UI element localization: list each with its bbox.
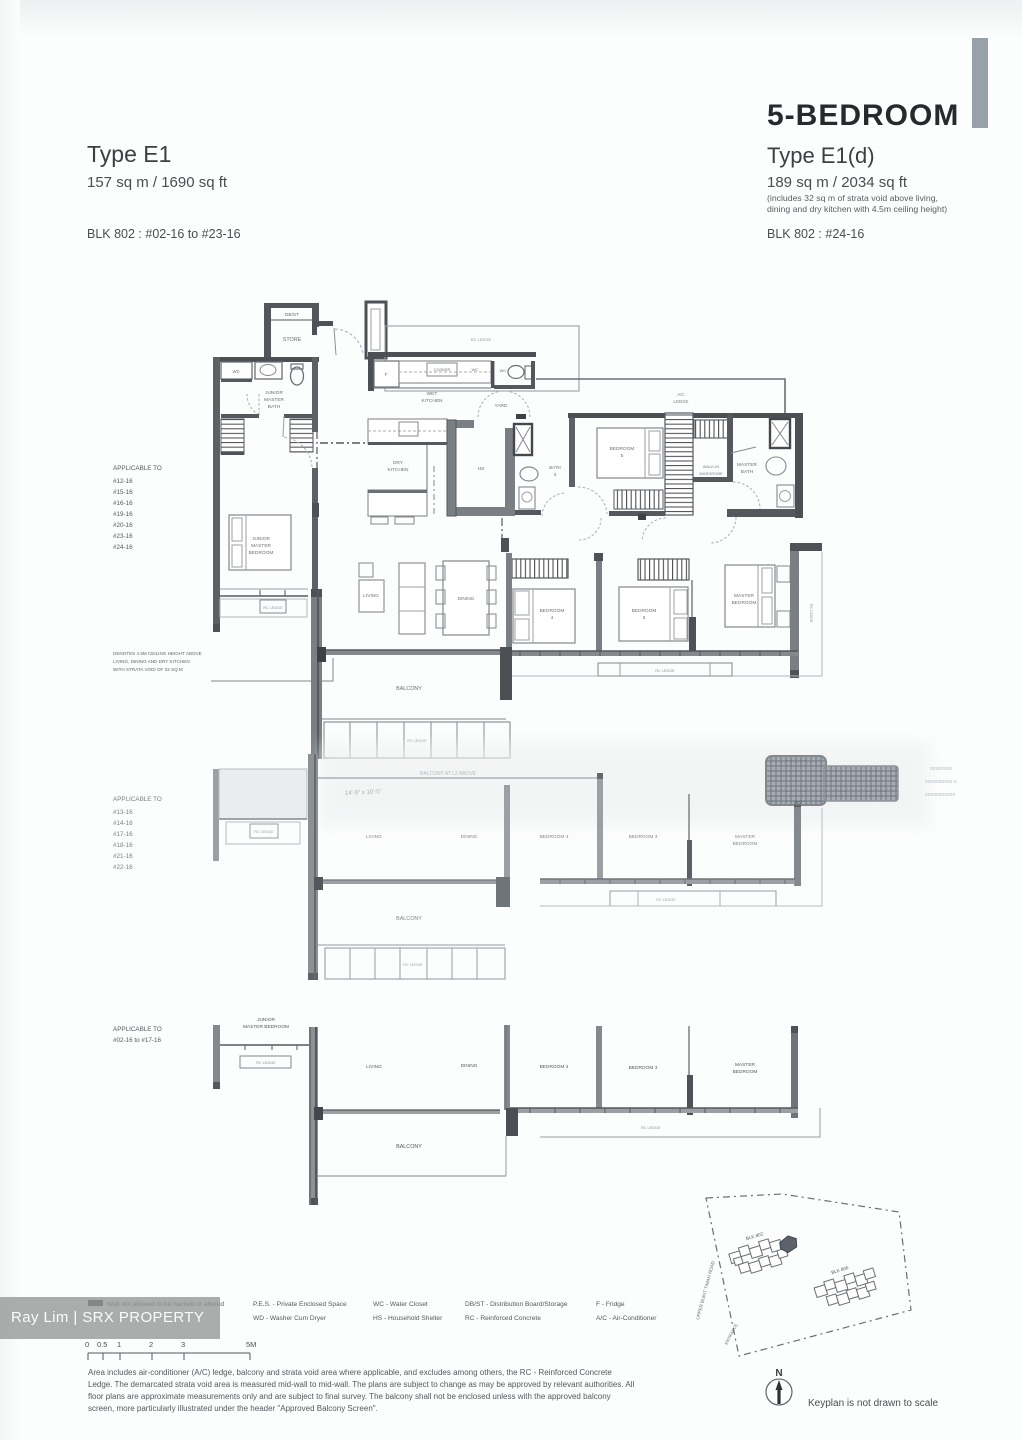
- svg-text:RC LEDGE: RC LEDGE: [656, 898, 676, 902]
- svg-text:3: 3: [554, 472, 557, 477]
- svg-text:157 sq m / 1690 sq ft: 157 sq m / 1690 sq ft: [87, 174, 228, 191]
- svg-text:RC LEDGE: RC LEDGE: [403, 963, 423, 967]
- svg-text:WET: WET: [427, 391, 438, 397]
- svg-text:#21-16: #21-16: [113, 853, 133, 860]
- svg-text:COOKER: COOKER: [434, 368, 451, 372]
- svg-text:DENOTES 4.5M CEILING HEIGHT AB: DENOTES 4.5M CEILING HEIGHT ABOVE: [113, 651, 202, 656]
- svg-text:BEDROOM: BEDROOM: [733, 1069, 758, 1075]
- svg-text:BEDROOM: BEDROOM: [540, 608, 565, 614]
- svg-text:RC LEDGE: RC LEDGE: [641, 1126, 661, 1130]
- svg-text:UPPER BUKIT TIMAH ROAD: UPPER BUKIT TIMAH ROAD: [695, 1260, 716, 1320]
- svg-text:RC LEDGE: RC LEDGE: [655, 669, 675, 673]
- svg-text:dining and dry kitchen with 4.: dining and dry kitchen with 4.5m ceiling…: [767, 204, 947, 214]
- svg-text:BEDROOM 3: BEDROOM 3: [629, 1065, 658, 1071]
- svg-text:WD - Washer Cum Dryer: WD - Washer Cum Dryer: [253, 1315, 327, 1322]
- svg-text:LIVING: LIVING: [363, 593, 379, 599]
- svg-text:#24-16: #24-16: [113, 544, 133, 551]
- svg-text:N: N: [775, 1368, 782, 1379]
- svg-text:WITH STRATA VOID OF 32 SQ M: WITH STRATA VOID OF 32 SQ M: [113, 667, 183, 672]
- svg-text:Ledge. The demarcated strata v: Ledge. The demarcated strata void area i…: [88, 1380, 634, 1389]
- svg-text:BLK 806: BLK 806: [831, 1265, 850, 1275]
- svg-text:5M: 5M: [246, 1340, 256, 1349]
- svg-text:5: 5: [621, 453, 624, 459]
- svg-text:BEDROOM: BEDROOM: [732, 600, 757, 606]
- svg-text:APPLICABLE TO: APPLICABLE TO: [113, 796, 162, 803]
- svg-text:BALCONY AT L2 ABOVE: BALCONY AT L2 ABOVE: [420, 771, 477, 777]
- svg-text:BALCONY: BALCONY: [396, 916, 422, 922]
- svg-text:A/C - Air-Conditioner: A/C - Air-Conditioner: [596, 1315, 657, 1322]
- svg-text:BLK 802 : #24-16: BLK 802 : #24-16: [767, 227, 864, 241]
- svg-text:#16-16: #16-16: [113, 500, 133, 507]
- svg-text:5-BEDROOM: 5-BEDROOM: [767, 99, 959, 132]
- svg-text:2: 2: [149, 1340, 153, 1349]
- svg-text:WC: WC: [472, 367, 479, 372]
- svg-text:WD: WD: [233, 369, 240, 374]
- svg-text:BALCONY: BALCONY: [396, 686, 422, 692]
- svg-text:JUNIOR: JUNIOR: [265, 390, 283, 396]
- svg-text:DRY: DRY: [393, 460, 404, 466]
- svg-text:WALK-IN: WALK-IN: [703, 464, 720, 469]
- svg-text:3: 3: [181, 1340, 185, 1349]
- svg-text:BATH: BATH: [268, 404, 281, 410]
- svg-text:Area includes air-conditioner: Area includes air-conditioner (A/C) ledg…: [88, 1368, 612, 1377]
- svg-text:1: 1: [117, 1340, 121, 1349]
- svg-text:BEDROOM 4: BEDROOM 4: [540, 1064, 569, 1070]
- svg-text:BLK 802 : #02-16 to #23-16: BLK 802 : #02-16 to #23-16: [87, 227, 241, 241]
- svg-text:HS: HS: [478, 466, 485, 472]
- svg-text:Type E1(d): Type E1(d): [767, 143, 875, 168]
- svg-text:BEDROOM: BEDROOM: [249, 550, 274, 556]
- svg-text:0: 0: [85, 1340, 89, 1349]
- svg-text:Keyplan is not drawn to scale: Keyplan is not drawn to scale: [808, 1398, 939, 1409]
- svg-text:LIVING: LIVING: [366, 1064, 382, 1070]
- svg-text:DINING: DINING: [461, 1063, 478, 1069]
- svg-text:#20-16: #20-16: [113, 522, 133, 529]
- svg-text:4: 4: [551, 615, 554, 621]
- svg-text:BLK 802: BLK 802: [745, 1231, 764, 1241]
- svg-text:MASTER BEDROOM: MASTER BEDROOM: [243, 1024, 289, 1030]
- svg-text:RC LEDGE: RC LEDGE: [407, 739, 427, 743]
- svg-text:BEDROOM 4: BEDROOM 4: [540, 834, 569, 840]
- svg-text:DB/ST - Distribution Board/Sto: DB/ST - Distribution Board/Storage: [465, 1301, 568, 1308]
- svg-text:WC: WC: [500, 368, 507, 373]
- svg-text:F - Fridge: F - Fridge: [596, 1301, 625, 1308]
- svg-text:#13-16: #13-16: [113, 809, 133, 816]
- svg-text:#17-16: #17-16: [113, 831, 133, 838]
- svg-text:BATH: BATH: [741, 469, 754, 475]
- svg-text:MASTER: MASTER: [264, 397, 285, 403]
- svg-text:BEDROOM: BEDROOM: [610, 446, 635, 452]
- svg-text:xxxxxxxx: xxxxxxxx: [930, 766, 952, 772]
- svg-text:MASTER: MASTER: [735, 1062, 756, 1068]
- svg-text:DINING: DINING: [458, 596, 475, 602]
- svg-text:MASTER: MASTER: [737, 462, 758, 468]
- svg-text:xxxxxxxxxx x: xxxxxxxxxx x: [925, 779, 957, 785]
- svg-text:BEDROOM: BEDROOM: [733, 841, 758, 847]
- svg-text:APPLICABLE TO: APPLICABLE TO: [113, 1026, 162, 1033]
- svg-text:F: F: [385, 372, 388, 377]
- svg-text:KITCHEN: KITCHEN: [421, 398, 443, 404]
- svg-text:#14-16: #14-16: [113, 820, 133, 827]
- svg-text:RC LEDGE: RC LEDGE: [256, 1061, 276, 1065]
- svg-text:#18-16: #18-16: [113, 842, 133, 849]
- svg-text:floor plans are approximate me: floor plans are approximate measurements…: [88, 1392, 611, 1401]
- svg-text:LIVING, DINING AND DRY KITCHEN: LIVING, DINING AND DRY KITCHEN: [113, 659, 190, 664]
- svg-text:BEDROOM: BEDROOM: [632, 608, 657, 614]
- svg-text:ENTRANCE: ENTRANCE: [723, 1323, 738, 1346]
- svg-text:#23-16: #23-16: [113, 533, 133, 540]
- svg-text:KITCHEN: KITCHEN: [387, 467, 409, 473]
- svg-text:A/C: A/C: [677, 392, 684, 397]
- svg-text:BATH: BATH: [549, 465, 560, 470]
- svg-text:STORE: STORE: [283, 337, 302, 343]
- svg-text:#19-16: #19-16: [113, 511, 133, 518]
- svg-text:RC LEDGE: RC LEDGE: [263, 606, 283, 610]
- svg-text:DINING: DINING: [461, 834, 478, 840]
- svg-text:LIVING: LIVING: [366, 834, 382, 840]
- svg-text:RC LEDGE: RC LEDGE: [471, 337, 492, 342]
- svg-text:APPLICABLE TO: APPLICABLE TO: [113, 465, 162, 472]
- svg-text:BALCONY: BALCONY: [396, 1144, 422, 1150]
- svg-text:DB/ST: DB/ST: [285, 312, 299, 318]
- svg-text:WC - Water Closet: WC - Water Closet: [373, 1301, 428, 1308]
- svg-text:#15-16: #15-16: [113, 489, 133, 496]
- svg-text:Type E1: Type E1: [87, 141, 171, 167]
- svg-text:JUNIOR: JUNIOR: [252, 536, 270, 542]
- svg-text:LEDGE: LEDGE: [674, 399, 689, 404]
- svg-text:RC LEDGE: RC LEDGE: [809, 604, 813, 623]
- svg-text:YARD: YARD: [495, 403, 509, 409]
- svg-text:MASTER: MASTER: [251, 543, 272, 549]
- svg-text:HS - Household Shelter: HS - Household Shelter: [373, 1315, 443, 1322]
- svg-text:#02-16 to #17-16: #02-16 to #17-16: [113, 1037, 161, 1044]
- svg-text:(includes 32 sq m of strata vo: (includes 32 sq m of strata void above l…: [767, 193, 938, 203]
- svg-text:screen, more particularly illu: screen, more particularly illustrated un…: [88, 1404, 378, 1413]
- svg-text:189 sq m / 2034 sq ft: 189 sq m / 2034 sq ft: [767, 174, 908, 191]
- svg-text:MASTER: MASTER: [734, 593, 755, 599]
- svg-text:MASTER: MASTER: [735, 834, 756, 840]
- svg-text:RC LEDGE: RC LEDGE: [254, 830, 274, 834]
- svg-text:#12-16: #12-16: [113, 478, 133, 485]
- svg-text:3: 3: [643, 615, 646, 621]
- svg-text:WARDROBE: WARDROBE: [699, 471, 723, 476]
- svg-text:#22-16: #22-16: [113, 864, 133, 871]
- svg-text:JUNIOR: JUNIOR: [257, 1017, 275, 1023]
- svg-text:P.E.S. - Private Enclosed Spac: P.E.S. - Private Enclosed Space: [253, 1301, 347, 1308]
- svg-text:0.5: 0.5: [97, 1340, 107, 1349]
- svg-text:BEDROOM 3: BEDROOM 3: [629, 834, 658, 840]
- svg-text:RC - Reinforced Concrete: RC - Reinforced Concrete: [465, 1315, 541, 1322]
- svg-text:xxxxxxxxxxx: xxxxxxxxxxx: [925, 792, 956, 798]
